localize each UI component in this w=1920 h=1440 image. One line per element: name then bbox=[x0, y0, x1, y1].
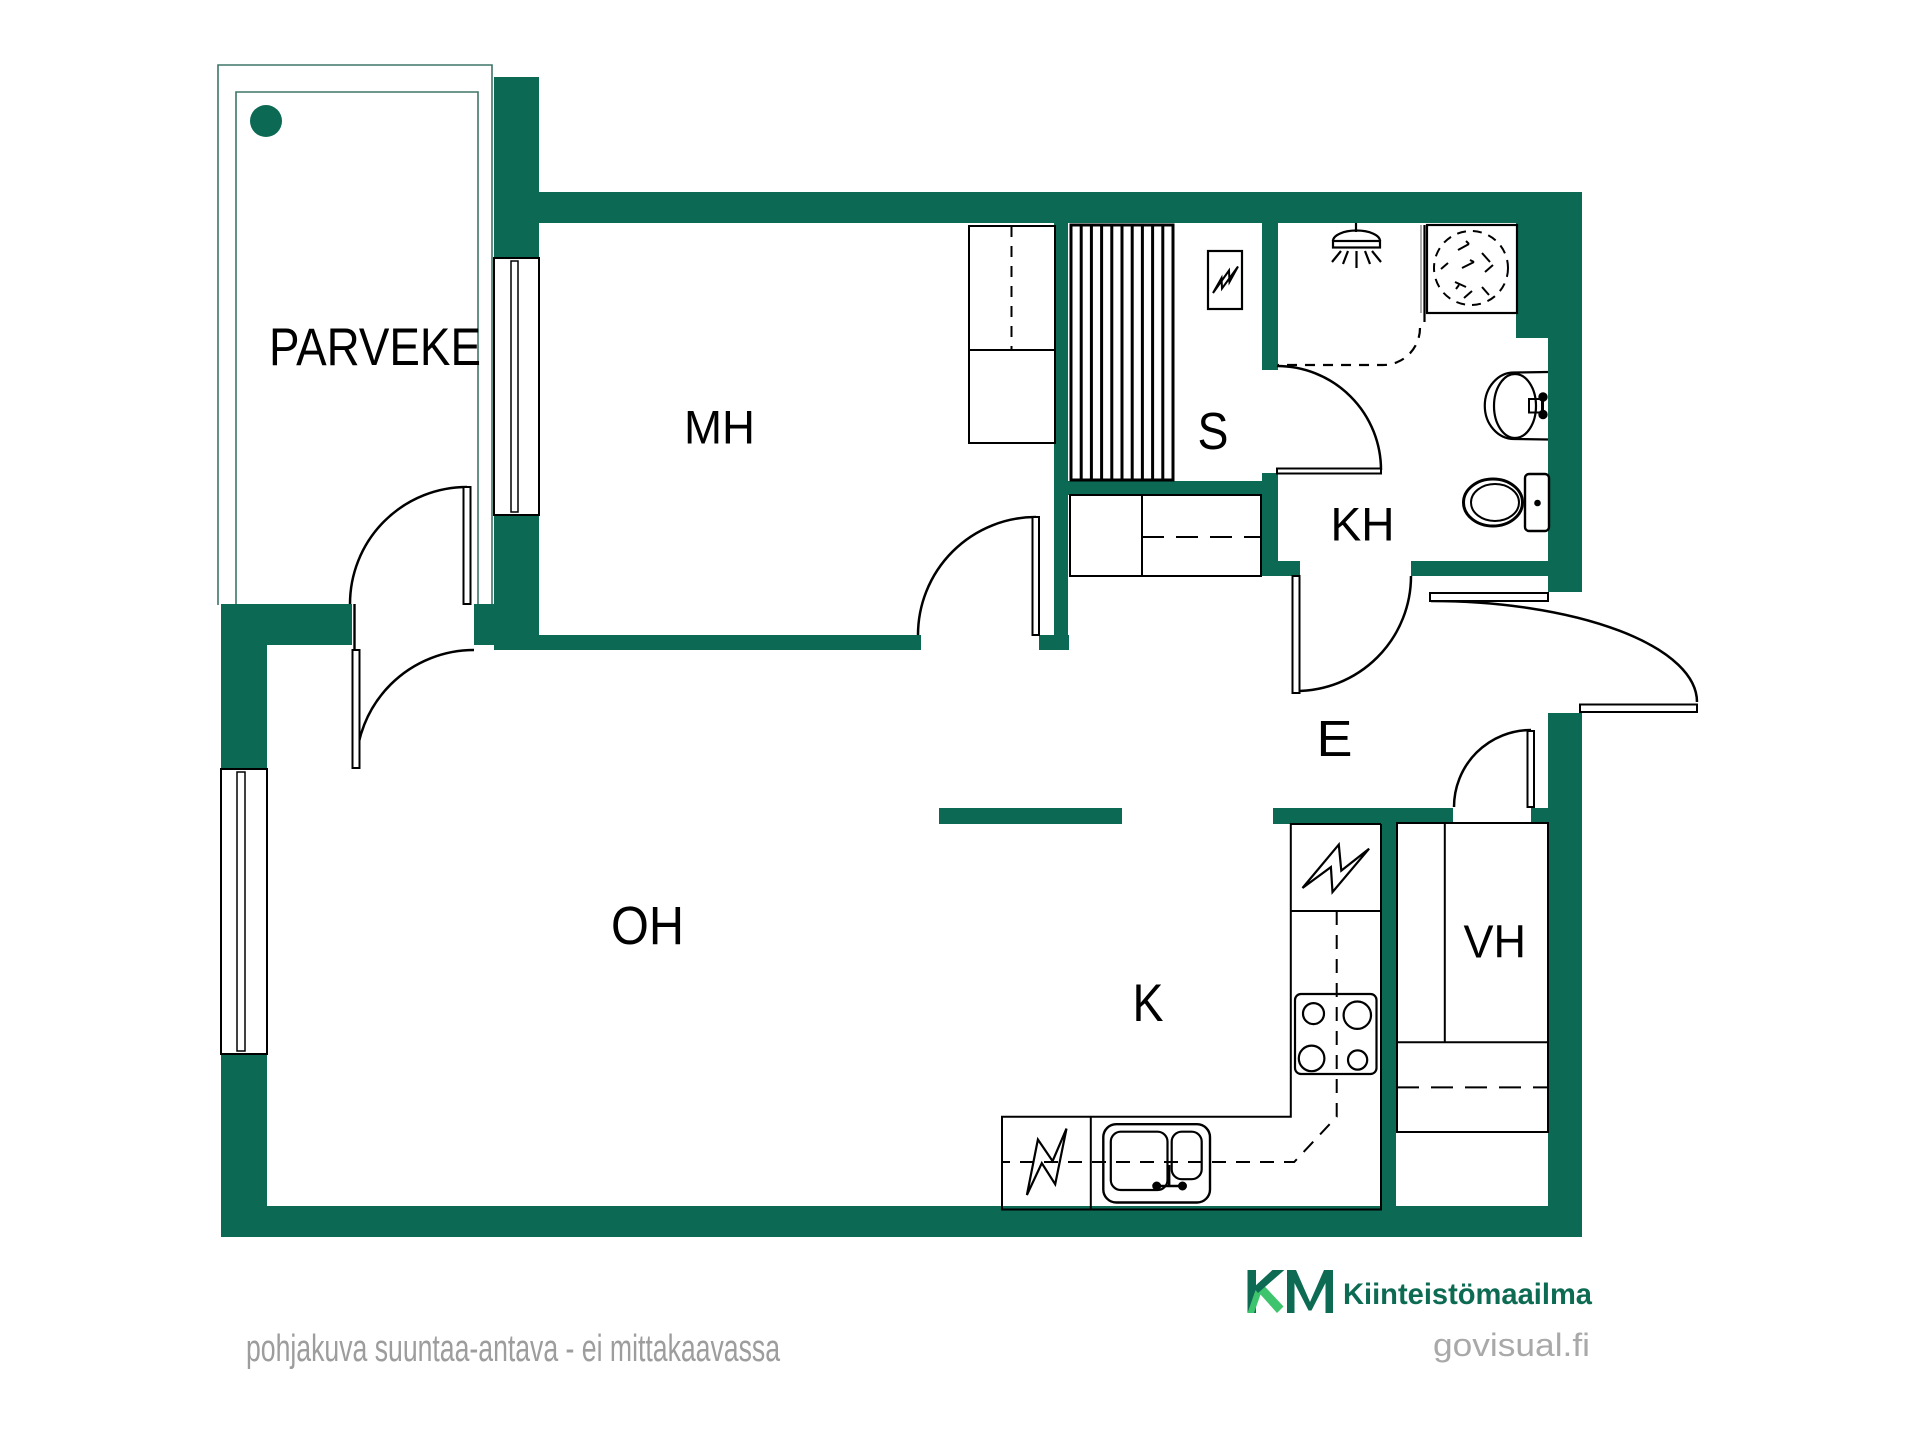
svg-text:pohjakuva suuntaa-antava - ei: pohjakuva suuntaa-antava - ei mittakaava… bbox=[246, 1328, 781, 1370]
svg-text:Kiinteistömaailma: Kiinteistömaailma bbox=[1343, 1278, 1592, 1311]
svg-text:PARVEKE: PARVEKE bbox=[269, 318, 481, 377]
svg-text:KH: KH bbox=[1331, 499, 1395, 552]
svg-text:OH: OH bbox=[611, 896, 684, 956]
svg-text:govisual.fi: govisual.fi bbox=[1433, 1327, 1590, 1363]
svg-text:MH: MH bbox=[684, 402, 755, 455]
svg-text:E: E bbox=[1317, 710, 1353, 767]
svg-text:VH: VH bbox=[1464, 916, 1527, 968]
svg-text:K: K bbox=[1133, 974, 1164, 1033]
svg-text:S: S bbox=[1198, 403, 1229, 461]
